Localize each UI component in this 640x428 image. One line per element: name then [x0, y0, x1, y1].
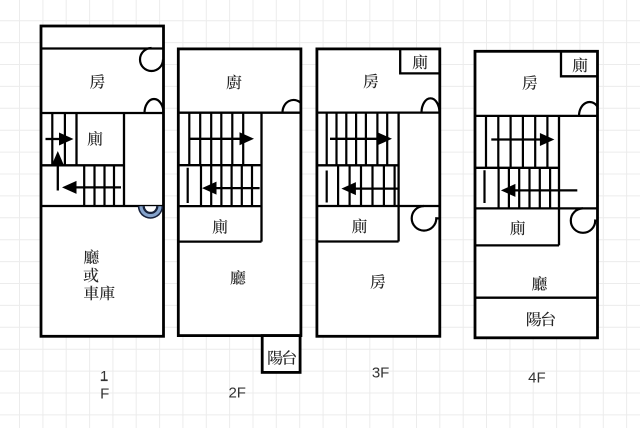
svg-text:4F: 4F [528, 369, 546, 386]
svg-text:1: 1 [100, 368, 108, 385]
svg-text:F: F [100, 386, 109, 403]
svg-text:3F: 3F [372, 364, 390, 381]
svg-text:2F: 2F [228, 384, 246, 401]
